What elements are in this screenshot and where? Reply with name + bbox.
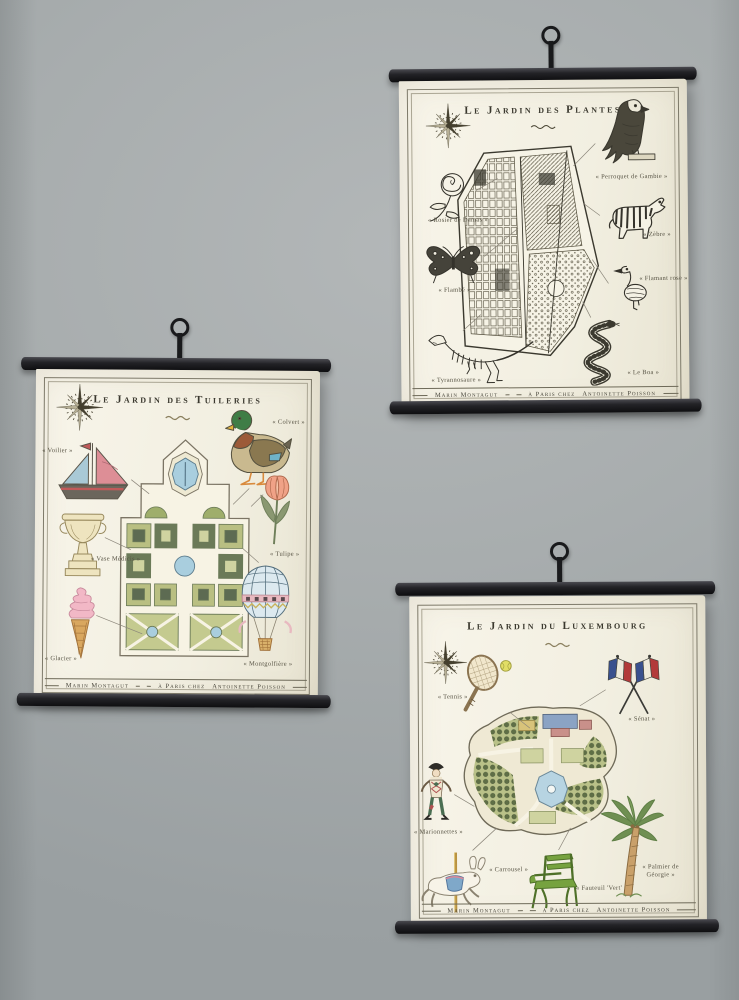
hanging-strap	[557, 557, 562, 582]
credit-author: Marin Montagut	[435, 391, 498, 399]
bottom-rod	[390, 399, 702, 415]
zebra-label: « Zèbre »	[626, 231, 688, 240]
ice-cream-icon	[64, 581, 97, 665]
snake-label: « Le Boa »	[617, 369, 669, 378]
harlequin-icon	[418, 759, 454, 827]
eagle-label: « Perroquet de Gambie »	[586, 173, 678, 182]
title-divider-ornament	[165, 415, 191, 421]
compass-rose-icon	[56, 383, 104, 431]
credit-line: Marin Montagut à Paris chez Antoinette P…	[45, 678, 307, 694]
credit-place: à Paris chez	[528, 391, 575, 398]
hanging-strap	[548, 41, 553, 70]
butterfly-icon	[422, 241, 484, 288]
credit-author: Marin Montagut	[447, 907, 510, 914]
credit-place: à Paris chez	[158, 683, 205, 690]
bottom-rod	[17, 693, 331, 708]
vase-label: « Vase Médicis »	[87, 555, 145, 564]
duck-label: « Colvert »	[262, 419, 316, 428]
poster-jardin-du-luxembourg: Le Jardin du Luxembourg	[393, 539, 719, 947]
bottom-rod	[395, 919, 719, 934]
tennis-racket-icon	[458, 652, 514, 714]
harlequin-label: « Marionnettes »	[410, 828, 466, 836]
ice-cream-label: « Glacier »	[38, 655, 84, 663]
tulip-icon	[255, 471, 300, 549]
poster-paper: Le Jardin des Tuileries	[34, 369, 320, 703]
snake-icon	[575, 319, 622, 385]
sailboat-label: « Voilier »	[37, 447, 77, 455]
rose-label: « Rosier de Damas »	[416, 216, 500, 225]
poster-jardin-des-plantes: Le Jardin des Plantes	[386, 23, 701, 426]
title-divider-ornament	[544, 642, 570, 648]
eagle-icon	[593, 95, 660, 172]
top-rod	[395, 581, 715, 596]
hot-air-balloon-icon	[234, 560, 297, 658]
flags-label: « Sénat »	[620, 715, 664, 723]
poster-jardin-des-tuileries: Le Jardin des Tuileries	[17, 315, 334, 721]
butterfly-label: « Flambé »	[425, 287, 485, 296]
title-divider-ornament	[530, 124, 556, 130]
medici-vase-icon	[57, 501, 110, 589]
tulip-label: « Tulipe »	[259, 551, 311, 559]
credit-place: à Paris chez	[543, 907, 590, 914]
hanging-strap	[177, 333, 182, 360]
palm-tree-icon	[598, 795, 667, 901]
tennis-label: « Tennis »	[430, 693, 476, 701]
credit-publisher: Antoinette Poisson	[597, 906, 671, 913]
poster-paper: Le Jardin des Plantes	[399, 79, 690, 412]
poster-title: Le Jardin du Luxembourg	[409, 619, 705, 633]
flamingo-label: « Flamant rose »	[638, 275, 688, 284]
french-flags-icon	[604, 651, 664, 717]
balloon-label: « Montgolfière »	[238, 660, 298, 669]
credit-publisher: Antoinette Poisson	[582, 390, 656, 398]
credit-author: Marin Montagut	[66, 682, 129, 689]
credit-line: Marin Montagut à Paris chez Antoinette P…	[422, 902, 696, 917]
rose-icon	[422, 171, 476, 223]
compass-rose-icon	[425, 103, 471, 149]
credit-publisher: Antoinette Poisson	[212, 683, 286, 691]
flamingo-icon	[612, 261, 652, 313]
photo-gray-wall: { "scene": { "wall_color": "#a8adae", "r…	[0, 0, 739, 1000]
palm-label: « Palmier de Géorgie »	[635, 863, 687, 880]
poster-paper: Le Jardin du Luxembourg	[409, 595, 707, 927]
trex-label: « Tyrannosaure »	[421, 376, 491, 385]
